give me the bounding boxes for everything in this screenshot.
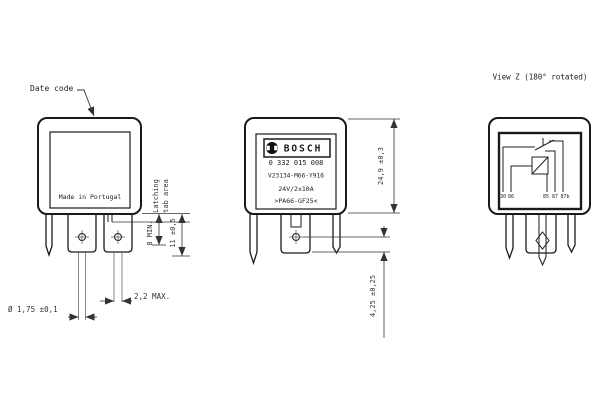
view-z-circuit xyxy=(503,138,563,192)
bosch-brand-text: BOSCH xyxy=(284,143,323,154)
date-code-label: Date code xyxy=(30,84,73,93)
pin-label-87b: 87b xyxy=(560,194,569,200)
date-code-leader xyxy=(77,90,94,116)
pin-label-86: 86 xyxy=(508,194,514,200)
rating-text: 24V/2x10A xyxy=(278,185,313,193)
pin-label-85: 85 xyxy=(543,194,549,200)
latching-tab-label-line2: tab area xyxy=(162,179,170,213)
view-z-pins xyxy=(506,214,575,265)
dim-11: 11 ±0,5 xyxy=(169,218,177,248)
front-view-centerlines xyxy=(75,230,125,320)
view-z-title: View Z (180° rotated) xyxy=(493,73,588,82)
dim-22-max: 2,2 MAX. xyxy=(134,292,170,301)
pin-label-30: 30 xyxy=(500,194,506,200)
label-view-centerlines xyxy=(289,230,303,244)
material-text: >PA66-GF25< xyxy=(274,197,317,205)
front-view-pins xyxy=(46,214,132,255)
dim-hole-diameter: Ø 1,75 ±0,1 xyxy=(8,305,58,314)
made-in-portugal-text: Made in Portugal xyxy=(59,193,122,201)
dim-8-min: 8 MIN. xyxy=(146,220,154,245)
bosch-armature-icon xyxy=(266,142,278,154)
technical-drawing-canvas: Date code View Z (180° rotated) Made in … xyxy=(0,0,600,400)
type-code-text: V23134-M66-Y916 xyxy=(268,173,324,180)
label-view-pins xyxy=(250,214,340,263)
dim-pin-425: 4,25 ±0,25 xyxy=(369,275,377,317)
pin-label-87: 87 xyxy=(552,194,558,200)
part-number-text: 0 332 015 008 xyxy=(269,159,324,167)
latching-tab-label-line1: Latching xyxy=(152,179,160,213)
dim-height-249: 24,9 ±0,3 xyxy=(377,147,385,185)
